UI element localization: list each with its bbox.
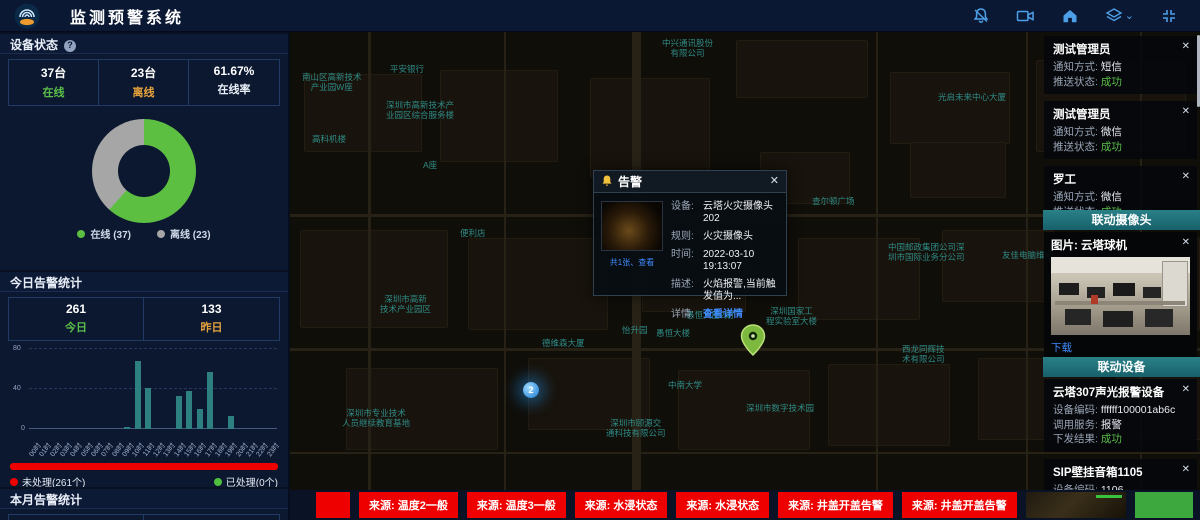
- notification-card: ✕测试管理员通知方式: 微信推送状态: 成功: [1044, 101, 1197, 159]
- home-icon[interactable]: [1061, 7, 1079, 25]
- alert-field-row: 时间:2022-03-10 19:13:07: [671, 249, 779, 273]
- alert-popup-title: 告警: [618, 173, 642, 190]
- map-building: [828, 364, 950, 446]
- notification-row: 推送状态: 成功: [1053, 75, 1188, 90]
- alert-field-label: 规则:: [671, 231, 703, 243]
- map-building: [590, 78, 710, 178]
- linked-camera-card: ✕ 图片: 云塔球机 下载: [1044, 232, 1197, 360]
- map-road: [1026, 32, 1028, 520]
- notification-title: 罗工: [1053, 171, 1188, 187]
- left-panel: 设备状态? 37台在线23台离线61.67%在线率 在线 (37)离线 (23)…: [0, 32, 290, 520]
- donut-legend: 在线 (37)离线 (23): [0, 226, 288, 241]
- today-alarms-title: 今日告警统计: [0, 270, 288, 292]
- alert-source-tile[interactable]: 来源: 井盖开盖告警: [778, 492, 893, 518]
- bar: [145, 388, 151, 429]
- month-alarms-section: 本月告警统计 7631146: [0, 487, 288, 520]
- view-details-link[interactable]: 查看详情: [703, 309, 743, 321]
- bar: [135, 361, 141, 429]
- legend-item: 离线 (23): [157, 226, 211, 241]
- bottom-alert-bar: 来源: 温度2一般来源: 温度3一般来源: 水浸状态来源: 水浸状态来源: 井盖…: [290, 490, 1200, 520]
- alert-field-value: 云塔火灾摄像头202: [703, 201, 779, 225]
- map-place-label: 深圳市专业技术 人员继续教育基地: [342, 408, 410, 428]
- download-link[interactable]: 下载: [1051, 340, 1190, 355]
- grid-line: [29, 388, 277, 389]
- linked-device-card: ✕云塔307声光报警设备设备编码: ffffff100001ab6c调用服务: …: [1044, 379, 1197, 452]
- help-icon[interactable]: ?: [64, 40, 76, 52]
- map-place-label: 高科机楼: [312, 134, 346, 144]
- alert-field-value: 火灾摄像头: [703, 231, 753, 243]
- map-building: [910, 142, 1006, 198]
- alert-field-row: 规则:火灾摄像头: [671, 231, 779, 243]
- alert-source-tile[interactable]: 来源: 温度2一般: [359, 492, 458, 518]
- legend-label: 离线 (23): [170, 226, 211, 241]
- close-icon[interactable]: ✕: [1182, 464, 1190, 475]
- y-tick-label: 40: [13, 385, 21, 392]
- bar: [186, 391, 192, 429]
- stat-cell: 1146: [144, 515, 279, 520]
- legend-item: 在线 (37): [77, 226, 131, 241]
- alert-field-label: 详情:: [671, 309, 703, 321]
- video-camera-icon[interactable]: [1016, 7, 1035, 25]
- month-alarms-title: 本月告警统计: [0, 487, 288, 509]
- legend-dot-icon: [157, 230, 165, 238]
- alert-popup: 告警 ✕ 共1张、查看 设备:云塔火灾摄像头202规则:火灾摄像头时间:2022…: [593, 170, 787, 296]
- close-icon[interactable]: ✕: [770, 176, 779, 187]
- alert-field-row: 描述:火焰报警,当前触发值为...: [671, 279, 779, 303]
- device-row: 调用服务: 报警: [1053, 418, 1188, 433]
- close-icon[interactable]: ✕: [1182, 171, 1190, 182]
- notification-row: 通知方式: 短信: [1053, 60, 1188, 75]
- close-icon[interactable]: ✕: [1182, 237, 1190, 248]
- map-building: [468, 238, 608, 330]
- map-place-label: 南山区高新技术 产业园W座: [302, 72, 362, 92]
- stat-value: 23台: [99, 64, 188, 81]
- map-place-label: 深圳市高新技术产 业园区综合服务楼: [386, 100, 454, 120]
- stat-label: 离线: [99, 84, 188, 100]
- stat-label: 在线: [9, 84, 98, 100]
- alert-source-tile[interactable]: 来源: 水浸状态: [676, 492, 769, 518]
- stat-cell: 37台在线: [9, 60, 99, 105]
- stat-label: 在线率: [189, 81, 279, 97]
- map-place-label: 西龙同辉技 术有限公司: [902, 344, 945, 364]
- today-bar-chart: 0408000时01时02时03时04时05时06时07时08时09时10时11…: [9, 343, 279, 455]
- page-title: 监测预警系统: [70, 4, 184, 28]
- alert-source-tile[interactable]: [316, 492, 350, 518]
- stat-cell: 133昨日: [144, 298, 279, 340]
- alert-snapshot-links[interactable]: 共1张、查看: [601, 257, 663, 268]
- bar: [207, 372, 213, 429]
- green-snapshot-thumbnail[interactable]: [1135, 492, 1193, 518]
- grid-line: [29, 348, 277, 349]
- device-title: 云塔307声光报警设备: [1053, 384, 1188, 400]
- stat-value: 61.67%: [189, 64, 279, 78]
- map-place-label: 查尔顿广场: [812, 196, 855, 206]
- today-alarms-stats: 261今日133昨日: [8, 297, 280, 341]
- legend-label: 在线 (37): [90, 226, 131, 241]
- stat-value: 261: [9, 302, 143, 316]
- alert-field-value: 2022-03-10 19:13:07: [703, 249, 779, 273]
- linked-devices-header[interactable]: 联动设备: [1043, 357, 1200, 377]
- device-status-section: 设备状态? 37台在线23台离线61.67%在线率 在线 (37)离线 (23): [0, 32, 288, 270]
- notification-row: 通知方式: 微信: [1053, 125, 1188, 140]
- camera-image-title: 图片: 云塔球机: [1051, 237, 1190, 253]
- map-place-label: 便利店: [460, 228, 486, 238]
- alert-field-label: 设备:: [671, 201, 703, 225]
- alert-source-tile[interactable]: 来源: 水浸状态: [575, 492, 668, 518]
- stat-label: 昨日: [144, 319, 279, 335]
- map-road: [876, 32, 878, 520]
- close-icon[interactable]: ✕: [1182, 41, 1190, 52]
- map-road: [504, 32, 506, 520]
- device-status-title: 设备状态?: [0, 32, 288, 54]
- blue-cluster-marker[interactable]: 2: [523, 382, 539, 398]
- stat-cell: 61.67%在线率: [189, 60, 279, 105]
- month-alarms-stats: 7631146: [8, 514, 280, 520]
- stat-cell: 763: [9, 515, 144, 520]
- map-place-label: 德维森大厦: [542, 338, 585, 348]
- compress-icon[interactable]: [1160, 7, 1178, 25]
- bar: [197, 409, 203, 429]
- alert-field-value: 火焰报警,当前触发值为...: [703, 279, 779, 303]
- map-building: [890, 72, 1010, 144]
- map-road: [368, 32, 371, 520]
- legend-dot-icon: [77, 230, 85, 238]
- device-row: 设备编码: ffffff100001ab6c: [1053, 403, 1188, 418]
- camera-snapshot-image[interactable]: [1051, 257, 1190, 335]
- stat-value: 133: [144, 302, 279, 316]
- alert-field-row: 详情:查看详情: [671, 309, 779, 321]
- device-status-stats: 37台在线23台离线61.67%在线率: [8, 59, 280, 106]
- app-logo-icon: [14, 3, 40, 29]
- alert-field-row: 设备:云塔火灾摄像头202: [671, 201, 779, 225]
- map-place-label: 中国邮政集团公司深 圳市国际业务分公司: [888, 242, 965, 262]
- map-place-label: A座: [423, 160, 437, 170]
- map-place-label: 深圳市颐源交 通科技有限公司: [606, 418, 666, 438]
- notification-list: ✕测试管理员通知方式: 短信推送状态: 成功✕测试管理员通知方式: 微信推送状态…: [1044, 36, 1197, 231]
- alarm-progress-bar: [10, 463, 278, 470]
- device-row: 下发结果: 成功: [1053, 432, 1188, 447]
- stat-value: 37台: [9, 64, 98, 81]
- notification-title: 测试管理员: [1053, 41, 1188, 57]
- map-place-label: 中南大学: [668, 380, 702, 390]
- map-building: [440, 70, 558, 162]
- layers-icon[interactable]: ⌄: [1105, 7, 1134, 25]
- bar: [124, 427, 130, 429]
- map-place-label: 中兴通讯股份 有限公司: [662, 38, 713, 58]
- stat-cell: 23台离线: [99, 60, 189, 105]
- map-building: [942, 230, 1054, 302]
- header: 监测预警系统: [0, 0, 1200, 32]
- x-axis-line: [29, 428, 277, 429]
- stat-label: 今日: [9, 319, 143, 335]
- alert-popup-fields: 设备:云塔火灾摄像头202规则:火灾摄像头时间:2022-03-10 19:13…: [671, 201, 779, 327]
- map-building: [736, 40, 868, 98]
- alert-source-tile[interactable]: 来源: 井盖开盖告警: [902, 492, 1017, 518]
- alarm-bell-icon: [601, 175, 613, 188]
- map-place-label: 深圳市高新 技术产业园区: [380, 294, 431, 314]
- right-panel: ✕测试管理员通知方式: 短信推送状态: 成功✕测试管理员通知方式: 微信推送状态…: [1043, 32, 1200, 520]
- close-icon[interactable]: ✕: [1182, 384, 1190, 395]
- close-icon[interactable]: ✕: [1182, 106, 1190, 117]
- notification-title: 测试管理员: [1053, 106, 1188, 122]
- today-alarms-section: 今日告警统计 261今日133昨日 0408000时01时02时03时04时05…: [0, 270, 288, 487]
- linked-camera-header[interactable]: 联动摄像头: [1043, 210, 1200, 230]
- alert-snapshot-image[interactable]: [601, 201, 663, 251]
- y-tick-label: 0: [21, 425, 25, 432]
- map-place-label: 深圳市数字技术园: [746, 403, 814, 413]
- y-tick-label: 80: [13, 345, 21, 352]
- alert-field-label: 时间:: [671, 249, 703, 273]
- map-place-label: 光启未来中心大厦: [938, 92, 1006, 102]
- alert-popup-header: 告警 ✕: [594, 171, 786, 193]
- device-title: SIP壁挂音箱1105: [1053, 464, 1188, 480]
- stat-cell: 261今日: [9, 298, 144, 340]
- notification-card: ✕测试管理员通知方式: 短信推送状态: 成功: [1044, 36, 1197, 94]
- app-window: 监测预警系统: [0, 0, 1200, 520]
- bar: [228, 416, 234, 429]
- bell-muted-icon[interactable]: [972, 7, 990, 25]
- device-status-donut-chart: [92, 119, 196, 223]
- notification-row: 推送状态: 成功: [1053, 140, 1188, 155]
- alert-source-tile[interactable]: 来源: 温度3一般: [467, 492, 566, 518]
- map-place-label: 平安银行: [390, 64, 424, 74]
- bar: [176, 396, 182, 429]
- alert-field-label: 描述:: [671, 279, 703, 303]
- notification-row: 通知方式: 微信: [1053, 190, 1188, 205]
- camera-snapshot-thumbnail[interactable]: [1026, 492, 1126, 518]
- chevron-down-icon: ⌄: [1125, 9, 1134, 22]
